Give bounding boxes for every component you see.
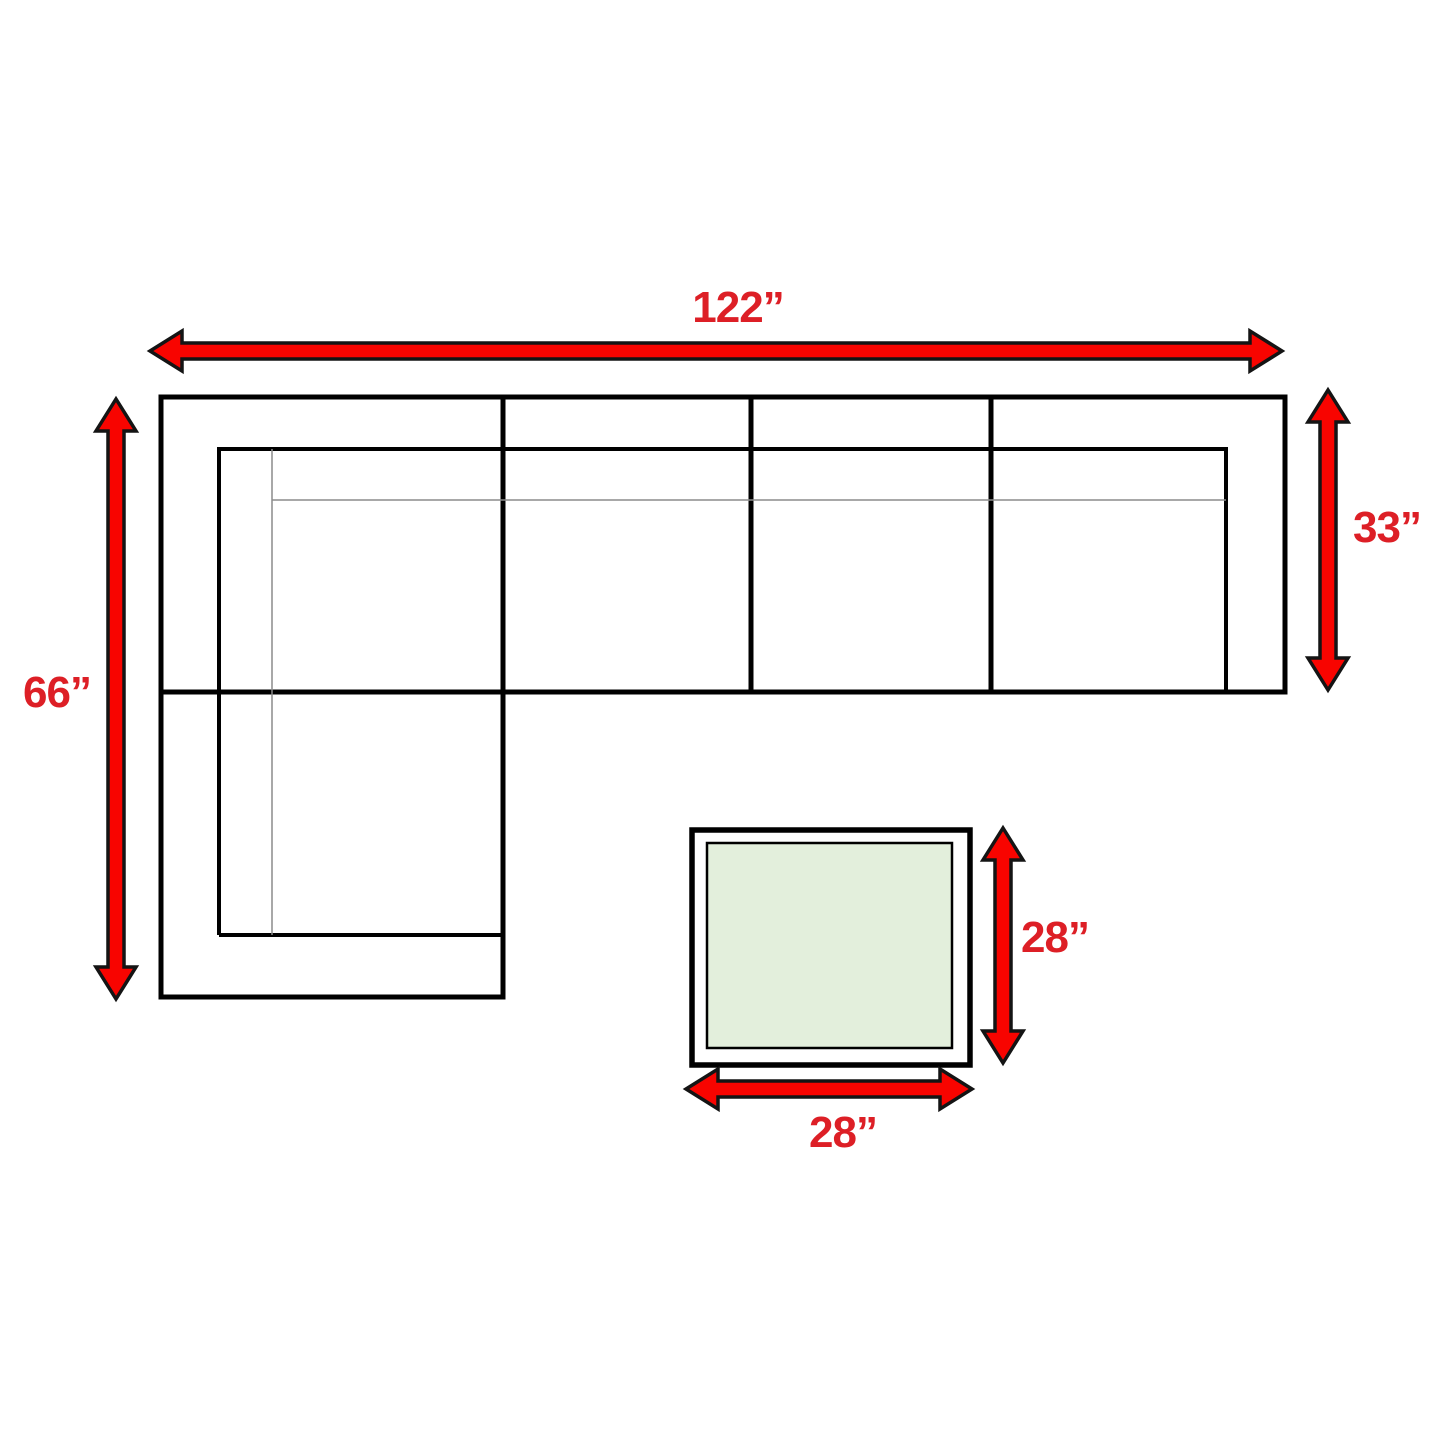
sofa-width-label: 122” — [692, 283, 783, 332]
table-depth-label: 28” — [1021, 913, 1089, 962]
table-width-label: 28” — [809, 1108, 877, 1157]
table-top-surface — [707, 843, 952, 1048]
side-table — [692, 830, 970, 1065]
sofa-depth-arrow — [96, 399, 136, 999]
sofa-section-depth-arrow — [1308, 390, 1348, 690]
sofa-width-arrow — [150, 331, 1282, 371]
sofa-section-depth-label: 33” — [1353, 503, 1421, 552]
table-depth-arrow — [983, 828, 1023, 1063]
sofa-depth-label: 66” — [23, 668, 91, 717]
table-width-arrow — [686, 1069, 972, 1109]
dimension-diagram-svg: 122” 66” 33” 28” 28” — [0, 0, 1445, 1445]
dimension-diagram: 122” 66” 33” 28” 28” — [0, 0, 1445, 1445]
